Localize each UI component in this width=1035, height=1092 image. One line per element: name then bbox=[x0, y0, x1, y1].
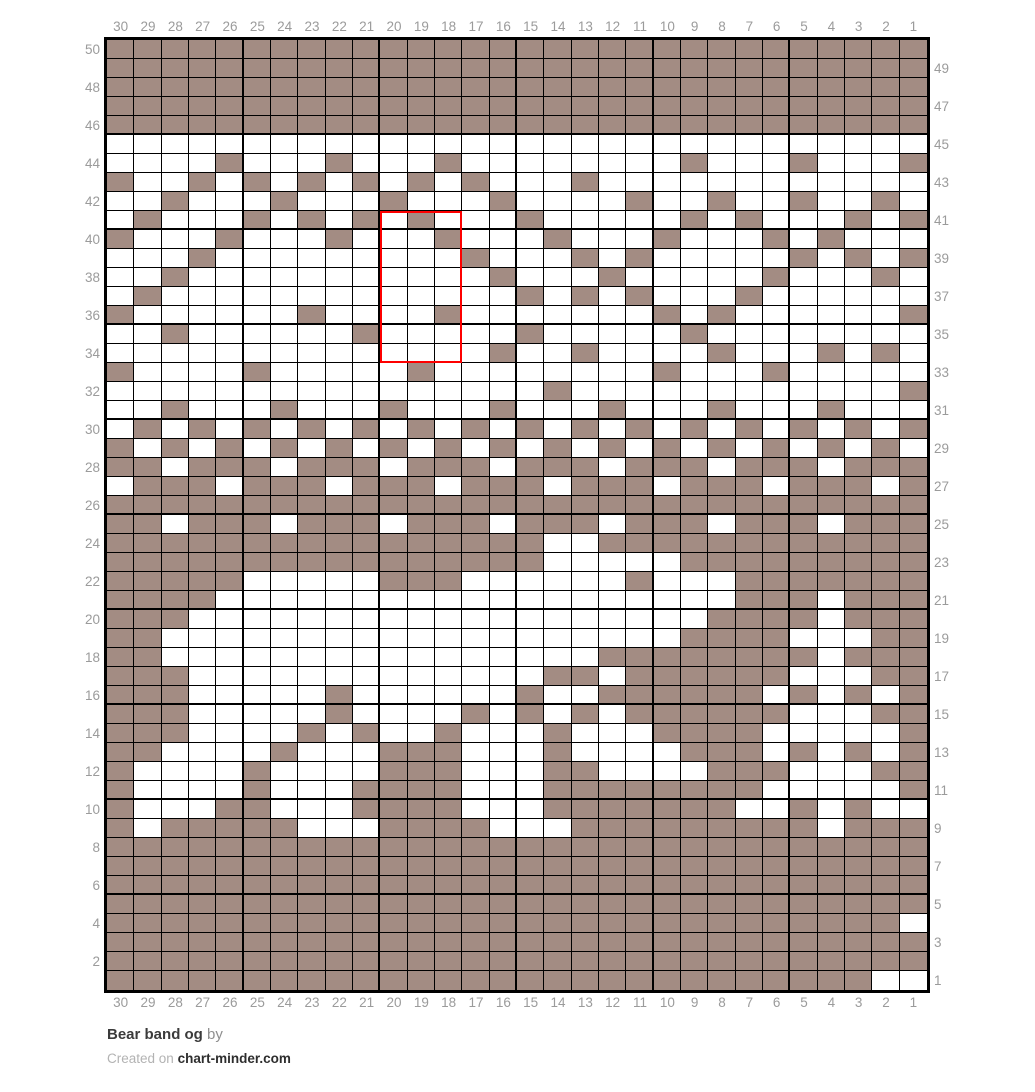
grid-cell[interactable] bbox=[326, 230, 353, 249]
grid-cell[interactable] bbox=[271, 458, 298, 477]
grid-cell[interactable] bbox=[162, 629, 189, 648]
grid-cell[interactable] bbox=[216, 838, 243, 857]
grid-cell[interactable] bbox=[326, 895, 353, 914]
grid-cell[interactable] bbox=[380, 952, 407, 971]
grid-cell[interactable] bbox=[681, 306, 708, 325]
grid-cell[interactable] bbox=[435, 743, 462, 762]
grid-cell[interactable] bbox=[900, 401, 927, 420]
grid-cell[interactable] bbox=[872, 230, 899, 249]
grid-cell[interactable] bbox=[681, 40, 708, 59]
grid-cell[interactable] bbox=[271, 477, 298, 496]
grid-cell[interactable] bbox=[681, 249, 708, 268]
grid-cell[interactable] bbox=[490, 667, 517, 686]
grid-cell[interactable] bbox=[189, 895, 216, 914]
grid-cell[interactable] bbox=[189, 610, 216, 629]
grid-cell[interactable] bbox=[380, 895, 407, 914]
grid-cell[interactable] bbox=[681, 743, 708, 762]
grid-cell[interactable] bbox=[818, 287, 845, 306]
grid-cell[interactable] bbox=[900, 971, 927, 990]
grid-cell[interactable] bbox=[790, 914, 817, 933]
grid-cell[interactable] bbox=[763, 496, 790, 515]
grid-cell[interactable] bbox=[353, 363, 380, 382]
grid-cell[interactable] bbox=[490, 173, 517, 192]
grid-cell[interactable] bbox=[626, 306, 653, 325]
grid-cell[interactable] bbox=[544, 610, 571, 629]
grid-cell[interactable] bbox=[845, 211, 872, 230]
grid-cell[interactable] bbox=[736, 971, 763, 990]
grid-cell[interactable] bbox=[872, 306, 899, 325]
grid-cell[interactable] bbox=[298, 116, 325, 135]
grid-cell[interactable] bbox=[654, 572, 681, 591]
grid-cell[interactable] bbox=[298, 572, 325, 591]
grid-cell[interactable] bbox=[244, 914, 271, 933]
grid-cell[interactable] bbox=[736, 667, 763, 686]
grid-cell[interactable] bbox=[134, 192, 161, 211]
grid-cell[interactable] bbox=[162, 458, 189, 477]
grid-cell[interactable] bbox=[298, 249, 325, 268]
grid-cell[interactable] bbox=[298, 230, 325, 249]
grid-cell[interactable] bbox=[872, 477, 899, 496]
grid-cell[interactable] bbox=[681, 914, 708, 933]
grid-cell[interactable] bbox=[900, 952, 927, 971]
grid-cell[interactable] bbox=[790, 116, 817, 135]
grid-cell[interactable] bbox=[681, 895, 708, 914]
grid-cell[interactable] bbox=[872, 458, 899, 477]
grid-cell[interactable] bbox=[763, 477, 790, 496]
grid-cell[interactable] bbox=[462, 401, 489, 420]
grid-cell[interactable] bbox=[872, 40, 899, 59]
grid-cell[interactable] bbox=[435, 173, 462, 192]
grid-cell[interactable] bbox=[380, 629, 407, 648]
grid-cell[interactable] bbox=[900, 705, 927, 724]
grid-cell[interactable] bbox=[572, 306, 599, 325]
grid-cell[interactable] bbox=[189, 325, 216, 344]
grid-cell[interactable] bbox=[572, 211, 599, 230]
grid-cell[interactable] bbox=[900, 97, 927, 116]
grid-cell[interactable] bbox=[189, 40, 216, 59]
grid-cell[interactable] bbox=[517, 439, 544, 458]
grid-cell[interactable] bbox=[326, 211, 353, 230]
grid-cell[interactable] bbox=[435, 781, 462, 800]
grid-cell[interactable] bbox=[544, 876, 571, 895]
grid-cell[interactable] bbox=[162, 553, 189, 572]
grid-cell[interactable] bbox=[271, 249, 298, 268]
grid-cell[interactable] bbox=[107, 686, 134, 705]
grid-cell[interactable] bbox=[435, 401, 462, 420]
grid-cell[interactable] bbox=[435, 838, 462, 857]
grid-cell[interactable] bbox=[244, 952, 271, 971]
grid-cell[interactable] bbox=[462, 857, 489, 876]
grid-cell[interactable] bbox=[462, 743, 489, 762]
grid-cell[interactable] bbox=[900, 249, 927, 268]
grid-cell[interactable] bbox=[244, 40, 271, 59]
grid-cell[interactable] bbox=[216, 477, 243, 496]
grid-cell[interactable] bbox=[271, 971, 298, 990]
grid-cell[interactable] bbox=[216, 192, 243, 211]
grid-cell[interactable] bbox=[244, 287, 271, 306]
grid-cell[interactable] bbox=[162, 154, 189, 173]
grid-cell[interactable] bbox=[900, 648, 927, 667]
grid-cell[interactable] bbox=[845, 287, 872, 306]
grid-cell[interactable] bbox=[845, 420, 872, 439]
grid-cell[interactable] bbox=[763, 59, 790, 78]
grid-cell[interactable] bbox=[872, 648, 899, 667]
grid-cell[interactable] bbox=[900, 268, 927, 287]
grid-cell[interactable] bbox=[599, 287, 626, 306]
grid-cell[interactable] bbox=[490, 439, 517, 458]
grid-cell[interactable] bbox=[326, 705, 353, 724]
grid-cell[interactable] bbox=[271, 344, 298, 363]
grid-cell[interactable] bbox=[818, 439, 845, 458]
grid-cell[interactable] bbox=[900, 933, 927, 952]
grid-cell[interactable] bbox=[298, 591, 325, 610]
grid-cell[interactable] bbox=[654, 895, 681, 914]
grid-cell[interactable] bbox=[818, 116, 845, 135]
grid-cell[interactable] bbox=[763, 515, 790, 534]
grid-cell[interactable] bbox=[353, 116, 380, 135]
grid-cell[interactable] bbox=[216, 230, 243, 249]
grid-cell[interactable] bbox=[408, 800, 435, 819]
grid-cell[interactable] bbox=[244, 838, 271, 857]
grid-cell[interactable] bbox=[626, 268, 653, 287]
grid-cell[interactable] bbox=[162, 838, 189, 857]
grid-cell[interactable] bbox=[244, 363, 271, 382]
grid-cell[interactable] bbox=[189, 344, 216, 363]
grid-cell[interactable] bbox=[845, 154, 872, 173]
grid-cell[interactable] bbox=[162, 610, 189, 629]
grid-cell[interactable] bbox=[654, 914, 681, 933]
grid-cell[interactable] bbox=[189, 819, 216, 838]
grid-cell[interactable] bbox=[271, 496, 298, 515]
grid-cell[interactable] bbox=[544, 401, 571, 420]
grid-cell[interactable] bbox=[189, 173, 216, 192]
grid-cell[interactable] bbox=[408, 762, 435, 781]
grid-cell[interactable] bbox=[626, 838, 653, 857]
grid-cell[interactable] bbox=[845, 876, 872, 895]
grid-cell[interactable] bbox=[681, 382, 708, 401]
grid-cell[interactable] bbox=[872, 819, 899, 838]
grid-cell[interactable] bbox=[244, 116, 271, 135]
grid-cell[interactable] bbox=[599, 230, 626, 249]
grid-cell[interactable] bbox=[134, 515, 161, 534]
grid-cell[interactable] bbox=[790, 211, 817, 230]
grid-cell[interactable] bbox=[818, 724, 845, 743]
grid-cell[interactable] bbox=[654, 591, 681, 610]
grid-cell[interactable] bbox=[790, 895, 817, 914]
grid-cell[interactable] bbox=[818, 857, 845, 876]
grid-cell[interactable] bbox=[134, 857, 161, 876]
grid-cell[interactable] bbox=[708, 933, 735, 952]
grid-cell[interactable] bbox=[544, 477, 571, 496]
grid-cell[interactable] bbox=[681, 154, 708, 173]
grid-cell[interactable] bbox=[244, 154, 271, 173]
grid-cell[interactable] bbox=[626, 952, 653, 971]
grid-cell[interactable] bbox=[189, 857, 216, 876]
grid-cell[interactable] bbox=[462, 686, 489, 705]
grid-cell[interactable] bbox=[599, 895, 626, 914]
grid-cell[interactable] bbox=[654, 116, 681, 135]
grid-cell[interactable] bbox=[736, 268, 763, 287]
grid-cell[interactable] bbox=[353, 78, 380, 97]
grid-cell[interactable] bbox=[162, 572, 189, 591]
grid-cell[interactable] bbox=[326, 781, 353, 800]
grid-cell[interactable] bbox=[736, 857, 763, 876]
grid-cell[interactable] bbox=[517, 382, 544, 401]
grid-cell[interactable] bbox=[353, 553, 380, 572]
grid-cell[interactable] bbox=[763, 534, 790, 553]
grid-cell[interactable] bbox=[626, 705, 653, 724]
grid-cell[interactable] bbox=[408, 838, 435, 857]
grid-cell[interactable] bbox=[271, 819, 298, 838]
grid-cell[interactable] bbox=[845, 306, 872, 325]
grid-cell[interactable] bbox=[681, 876, 708, 895]
grid-cell[interactable] bbox=[763, 838, 790, 857]
grid-cell[interactable] bbox=[572, 781, 599, 800]
grid-cell[interactable] bbox=[818, 192, 845, 211]
grid-cell[interactable] bbox=[544, 724, 571, 743]
grid-cell[interactable] bbox=[435, 154, 462, 173]
grid-cell[interactable] bbox=[462, 287, 489, 306]
grid-cell[interactable] bbox=[872, 895, 899, 914]
grid-cell[interactable] bbox=[271, 800, 298, 819]
grid-cell[interactable] bbox=[517, 952, 544, 971]
grid-cell[interactable] bbox=[462, 705, 489, 724]
grid-cell[interactable] bbox=[790, 287, 817, 306]
grid-cell[interactable] bbox=[380, 819, 407, 838]
grid-cell[interactable] bbox=[462, 781, 489, 800]
grid-cell[interactable] bbox=[708, 819, 735, 838]
grid-cell[interactable] bbox=[872, 325, 899, 344]
grid-cell[interactable] bbox=[872, 952, 899, 971]
grid-cell[interactable] bbox=[900, 743, 927, 762]
grid-cell[interactable] bbox=[298, 97, 325, 116]
grid-cell[interactable] bbox=[790, 876, 817, 895]
grid-cell[interactable] bbox=[763, 40, 790, 59]
grid-cell[interactable] bbox=[708, 914, 735, 933]
grid-cell[interactable] bbox=[845, 439, 872, 458]
grid-cell[interactable] bbox=[708, 59, 735, 78]
grid-cell[interactable] bbox=[599, 325, 626, 344]
grid-cell[interactable] bbox=[216, 382, 243, 401]
grid-cell[interactable] bbox=[818, 800, 845, 819]
grid-cell[interactable] bbox=[708, 363, 735, 382]
grid-cell[interactable] bbox=[244, 249, 271, 268]
grid-cell[interactable] bbox=[572, 230, 599, 249]
grid-cell[interactable] bbox=[490, 154, 517, 173]
grid-cell[interactable] bbox=[271, 116, 298, 135]
grid-cell[interactable] bbox=[626, 724, 653, 743]
grid-cell[interactable] bbox=[736, 59, 763, 78]
grid-cell[interactable] bbox=[790, 952, 817, 971]
grid-cell[interactable] bbox=[244, 268, 271, 287]
grid-cell[interactable] bbox=[107, 572, 134, 591]
grid-cell[interactable] bbox=[162, 876, 189, 895]
grid-cell[interactable] bbox=[572, 477, 599, 496]
grid-cell[interactable] bbox=[654, 230, 681, 249]
grid-cell[interactable] bbox=[408, 496, 435, 515]
grid-cell[interactable] bbox=[708, 610, 735, 629]
grid-cell[interactable] bbox=[162, 686, 189, 705]
grid-cell[interactable] bbox=[763, 781, 790, 800]
grid-cell[interactable] bbox=[654, 610, 681, 629]
grid-cell[interactable] bbox=[517, 40, 544, 59]
grid-cell[interactable] bbox=[572, 439, 599, 458]
grid-cell[interactable] bbox=[490, 477, 517, 496]
grid-cell[interactable] bbox=[763, 249, 790, 268]
grid-cell[interactable] bbox=[654, 781, 681, 800]
grid-cell[interactable] bbox=[626, 648, 653, 667]
grid-cell[interactable] bbox=[435, 933, 462, 952]
grid-cell[interactable] bbox=[162, 971, 189, 990]
grid-cell[interactable] bbox=[134, 40, 161, 59]
grid-cell[interactable] bbox=[736, 363, 763, 382]
grid-cell[interactable] bbox=[708, 458, 735, 477]
grid-cell[interactable] bbox=[790, 382, 817, 401]
grid-cell[interactable] bbox=[134, 686, 161, 705]
grid-cell[interactable] bbox=[818, 40, 845, 59]
grid-cell[interactable] bbox=[380, 59, 407, 78]
grid-cell[interactable] bbox=[872, 439, 899, 458]
grid-cell[interactable] bbox=[736, 154, 763, 173]
grid-cell[interactable] bbox=[872, 876, 899, 895]
grid-cell[interactable] bbox=[790, 458, 817, 477]
grid-cell[interactable] bbox=[435, 629, 462, 648]
grid-cell[interactable] bbox=[326, 249, 353, 268]
grid-cell[interactable] bbox=[626, 211, 653, 230]
grid-cell[interactable] bbox=[271, 439, 298, 458]
grid-cell[interactable] bbox=[216, 705, 243, 724]
grid-cell[interactable] bbox=[626, 743, 653, 762]
grid-cell[interactable] bbox=[162, 40, 189, 59]
grid-cell[interactable] bbox=[599, 439, 626, 458]
grid-cell[interactable] bbox=[900, 173, 927, 192]
grid-cell[interactable] bbox=[900, 800, 927, 819]
grid-cell[interactable] bbox=[654, 667, 681, 686]
grid-cell[interactable] bbox=[818, 515, 845, 534]
grid-cell[interactable] bbox=[244, 705, 271, 724]
grid-cell[interactable] bbox=[708, 572, 735, 591]
grid-cell[interactable] bbox=[681, 420, 708, 439]
grid-cell[interactable] bbox=[790, 610, 817, 629]
grid-cell[interactable] bbox=[900, 914, 927, 933]
grid-cell[interactable] bbox=[271, 781, 298, 800]
grid-cell[interactable] bbox=[462, 515, 489, 534]
grid-cell[interactable] bbox=[818, 135, 845, 154]
grid-cell[interactable] bbox=[708, 724, 735, 743]
grid-cell[interactable] bbox=[353, 952, 380, 971]
grid-cell[interactable] bbox=[490, 705, 517, 724]
grid-cell[interactable] bbox=[845, 724, 872, 743]
grid-cell[interactable] bbox=[763, 211, 790, 230]
grid-cell[interactable] bbox=[435, 705, 462, 724]
grid-cell[interactable] bbox=[818, 173, 845, 192]
grid-cell[interactable] bbox=[162, 762, 189, 781]
grid-cell[interactable] bbox=[353, 249, 380, 268]
grid-cell[interactable] bbox=[845, 933, 872, 952]
grid-cell[interactable] bbox=[490, 287, 517, 306]
grid-cell[interactable] bbox=[244, 477, 271, 496]
grid-cell[interactable] bbox=[298, 344, 325, 363]
grid-cell[interactable] bbox=[872, 762, 899, 781]
grid-cell[interactable] bbox=[736, 306, 763, 325]
grid-cell[interactable] bbox=[599, 591, 626, 610]
grid-cell[interactable] bbox=[490, 496, 517, 515]
grid-cell[interactable] bbox=[134, 173, 161, 192]
grid-cell[interactable] bbox=[162, 249, 189, 268]
grid-cell[interactable] bbox=[353, 819, 380, 838]
grid-cell[interactable] bbox=[490, 268, 517, 287]
grid-cell[interactable] bbox=[736, 895, 763, 914]
grid-cell[interactable] bbox=[244, 781, 271, 800]
grid-cell[interactable] bbox=[189, 268, 216, 287]
grid-cell[interactable] bbox=[736, 553, 763, 572]
grid-cell[interactable] bbox=[189, 230, 216, 249]
grid-cell[interactable] bbox=[380, 40, 407, 59]
grid-cell[interactable] bbox=[162, 420, 189, 439]
grid-cell[interactable] bbox=[572, 838, 599, 857]
grid-cell[interactable] bbox=[408, 135, 435, 154]
grid-cell[interactable] bbox=[626, 496, 653, 515]
grid-cell[interactable] bbox=[818, 952, 845, 971]
grid-cell[interactable] bbox=[517, 572, 544, 591]
grid-cell[interactable] bbox=[134, 116, 161, 135]
grid-cell[interactable] bbox=[435, 724, 462, 743]
grid-cell[interactable] bbox=[353, 933, 380, 952]
grid-cell[interactable] bbox=[900, 154, 927, 173]
grid-cell[interactable] bbox=[654, 306, 681, 325]
grid-cell[interactable] bbox=[654, 971, 681, 990]
grid-cell[interactable] bbox=[736, 705, 763, 724]
grid-cell[interactable] bbox=[216, 610, 243, 629]
grid-cell[interactable] bbox=[490, 876, 517, 895]
grid-cell[interactable] bbox=[490, 572, 517, 591]
grid-cell[interactable] bbox=[353, 705, 380, 724]
grid-cell[interactable] bbox=[216, 876, 243, 895]
grid-cell[interactable] bbox=[244, 876, 271, 895]
grid-cell[interactable] bbox=[162, 268, 189, 287]
grid-cell[interactable] bbox=[216, 211, 243, 230]
grid-cell[interactable] bbox=[107, 857, 134, 876]
grid-cell[interactable] bbox=[380, 116, 407, 135]
grid-cell[interactable] bbox=[818, 781, 845, 800]
grid-cell[interactable] bbox=[462, 59, 489, 78]
grid-cell[interactable] bbox=[708, 135, 735, 154]
grid-cell[interactable] bbox=[544, 40, 571, 59]
grid-cell[interactable] bbox=[298, 876, 325, 895]
grid-cell[interactable] bbox=[162, 306, 189, 325]
grid-cell[interactable] bbox=[490, 420, 517, 439]
grid-cell[interactable] bbox=[244, 648, 271, 667]
grid-cell[interactable] bbox=[326, 800, 353, 819]
grid-cell[interactable] bbox=[244, 135, 271, 154]
grid-cell[interactable] bbox=[572, 116, 599, 135]
grid-cell[interactable] bbox=[544, 439, 571, 458]
grid-cell[interactable] bbox=[763, 762, 790, 781]
grid-cell[interactable] bbox=[189, 553, 216, 572]
grid-cell[interactable] bbox=[216, 572, 243, 591]
grid-cell[interactable] bbox=[134, 610, 161, 629]
grid-cell[interactable] bbox=[353, 382, 380, 401]
grid-cell[interactable] bbox=[872, 724, 899, 743]
grid-cell[interactable] bbox=[681, 78, 708, 97]
grid-cell[interactable] bbox=[216, 629, 243, 648]
grid-cell[interactable] bbox=[900, 344, 927, 363]
grid-cell[interactable] bbox=[326, 382, 353, 401]
grid-cell[interactable] bbox=[872, 192, 899, 211]
grid-cell[interactable] bbox=[736, 743, 763, 762]
grid-cell[interactable] bbox=[326, 496, 353, 515]
grid-cell[interactable] bbox=[900, 534, 927, 553]
